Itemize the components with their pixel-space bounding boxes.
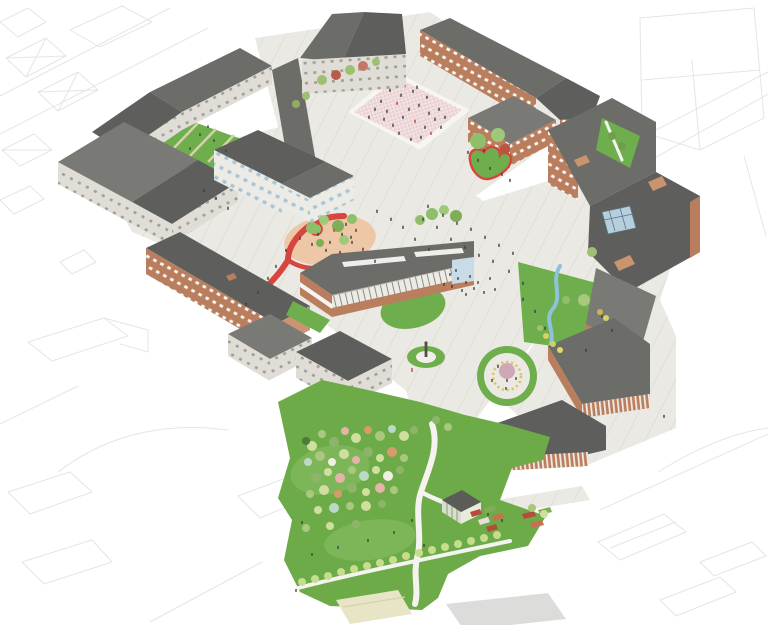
park-tree bbox=[339, 449, 349, 459]
walk-tree bbox=[450, 210, 462, 222]
path-row-tree bbox=[298, 578, 306, 586]
stream-plant bbox=[562, 296, 570, 304]
person bbox=[416, 86, 417, 89]
park-tree bbox=[390, 486, 398, 494]
park-tree bbox=[432, 416, 440, 424]
person bbox=[275, 265, 276, 268]
context-building bbox=[660, 577, 736, 616]
heart-planter-tree bbox=[470, 133, 486, 149]
person bbox=[505, 387, 506, 390]
person bbox=[213, 139, 214, 142]
park-tree bbox=[351, 433, 361, 443]
park-tree bbox=[346, 502, 354, 510]
park-tree bbox=[326, 522, 334, 530]
walk-tree bbox=[439, 205, 449, 215]
person bbox=[501, 173, 502, 176]
street-tree bbox=[302, 92, 310, 100]
person bbox=[411, 368, 412, 372]
person bbox=[398, 132, 399, 135]
person bbox=[362, 248, 363, 251]
park-tree bbox=[387, 447, 397, 457]
person bbox=[423, 544, 424, 547]
person bbox=[515, 377, 516, 380]
person bbox=[345, 223, 346, 226]
person bbox=[199, 133, 200, 136]
person bbox=[245, 303, 246, 306]
park-tree bbox=[347, 483, 357, 493]
person bbox=[227, 207, 228, 210]
park-tree bbox=[341, 427, 349, 435]
person bbox=[434, 118, 435, 121]
heart-planter-tree bbox=[500, 144, 510, 154]
street-tree bbox=[372, 58, 380, 66]
person bbox=[449, 273, 450, 276]
person bbox=[396, 102, 397, 105]
stream-plant bbox=[543, 333, 549, 339]
park-tree bbox=[528, 504, 536, 512]
person bbox=[341, 233, 342, 236]
east-wall bbox=[690, 196, 700, 258]
person bbox=[611, 329, 612, 332]
street-tree bbox=[292, 100, 300, 108]
masterplan-page bbox=[0, 0, 768, 625]
context-lot-x bbox=[38, 72, 98, 111]
stream-plant bbox=[550, 341, 556, 347]
heart-planter-tree bbox=[491, 128, 505, 142]
person bbox=[389, 89, 390, 92]
person bbox=[402, 116, 403, 119]
path-row-tree bbox=[363, 562, 371, 570]
playground-tree bbox=[339, 235, 349, 245]
park-tree bbox=[324, 468, 332, 476]
person bbox=[467, 151, 468, 154]
person bbox=[412, 90, 413, 93]
playground-tree bbox=[306, 222, 318, 234]
person bbox=[473, 287, 474, 290]
playground-tree bbox=[316, 239, 324, 247]
park-tree bbox=[319, 485, 329, 495]
park-tree bbox=[388, 425, 396, 433]
park-tree bbox=[306, 490, 314, 498]
stream-plant bbox=[597, 309, 603, 315]
context-road-curve bbox=[58, 427, 228, 472]
lawn-tree bbox=[618, 142, 626, 150]
person bbox=[440, 126, 441, 129]
person bbox=[492, 260, 493, 263]
path-row-tree bbox=[493, 531, 501, 539]
context-building bbox=[28, 318, 148, 361]
person bbox=[442, 214, 443, 217]
person bbox=[456, 222, 457, 225]
person bbox=[501, 519, 502, 522]
person bbox=[489, 277, 490, 280]
person bbox=[295, 589, 296, 592]
context-street bbox=[0, 8, 170, 96]
stream-plant bbox=[587, 247, 597, 257]
person bbox=[424, 126, 425, 129]
person bbox=[497, 365, 498, 368]
circular-pergola-garden bbox=[477, 346, 537, 406]
stream-plant bbox=[557, 347, 563, 353]
playground-tree bbox=[347, 214, 357, 224]
context-building bbox=[60, 250, 96, 274]
person bbox=[498, 244, 499, 247]
park-tree bbox=[318, 430, 326, 438]
person bbox=[311, 553, 312, 556]
context-road-curve bbox=[658, 428, 768, 472]
path-row-tree bbox=[350, 565, 358, 573]
context-building bbox=[8, 472, 92, 514]
park-tree bbox=[361, 501, 371, 511]
context-street bbox=[744, 156, 766, 236]
facade-windows bbox=[302, 54, 406, 94]
park-tree bbox=[363, 447, 373, 457]
park-tree bbox=[314, 506, 322, 514]
person bbox=[380, 100, 381, 103]
person bbox=[390, 218, 391, 221]
person bbox=[436, 226, 437, 229]
person bbox=[461, 289, 462, 292]
community-park bbox=[278, 380, 552, 610]
path-row-tree bbox=[441, 543, 449, 551]
person bbox=[402, 226, 403, 229]
path-row-tree bbox=[415, 549, 423, 557]
person bbox=[325, 249, 326, 252]
person bbox=[351, 241, 352, 244]
park-tree bbox=[359, 471, 369, 481]
park-tree bbox=[540, 510, 548, 518]
person bbox=[438, 108, 439, 111]
person bbox=[329, 241, 330, 244]
path-row-tree bbox=[454, 540, 462, 548]
person bbox=[299, 237, 300, 240]
path-row-tree bbox=[480, 534, 488, 542]
park-tree bbox=[304, 458, 312, 466]
person bbox=[508, 270, 509, 273]
park-tree bbox=[410, 426, 418, 434]
context-street bbox=[0, 386, 78, 424]
person bbox=[386, 110, 387, 113]
person bbox=[426, 96, 427, 99]
context-lot bbox=[0, 8, 46, 37]
person bbox=[465, 293, 466, 296]
bottom-lots bbox=[336, 590, 566, 625]
path-row-tree bbox=[402, 552, 410, 560]
park-tree bbox=[315, 451, 325, 461]
context-lot-x bbox=[2, 134, 52, 166]
person bbox=[522, 298, 523, 301]
person bbox=[428, 248, 429, 251]
person bbox=[477, 159, 478, 162]
person bbox=[478, 254, 479, 257]
person bbox=[337, 546, 338, 549]
lawn-tree bbox=[608, 132, 616, 140]
street-tree bbox=[345, 65, 355, 75]
person bbox=[350, 236, 351, 239]
person bbox=[333, 229, 334, 232]
person bbox=[457, 277, 458, 280]
person bbox=[601, 315, 602, 318]
park-tree bbox=[396, 466, 404, 474]
building-north-hall bbox=[300, 12, 406, 94]
person bbox=[392, 124, 393, 127]
person bbox=[257, 291, 258, 294]
person bbox=[376, 210, 377, 213]
park-tree bbox=[335, 473, 345, 483]
path-row-tree bbox=[311, 575, 319, 583]
context-building bbox=[22, 540, 112, 584]
person bbox=[469, 275, 470, 278]
park-tree bbox=[311, 473, 321, 483]
statue bbox=[425, 344, 428, 357]
park-tree bbox=[352, 520, 360, 528]
park-tree bbox=[372, 466, 380, 474]
person bbox=[428, 112, 429, 115]
person bbox=[477, 281, 478, 284]
person bbox=[317, 233, 318, 236]
person bbox=[465, 281, 466, 284]
person bbox=[408, 108, 409, 111]
path-row-tree bbox=[467, 537, 475, 545]
person bbox=[491, 379, 492, 382]
person bbox=[203, 189, 204, 192]
person bbox=[189, 147, 190, 150]
person bbox=[663, 415, 664, 418]
person bbox=[470, 228, 471, 231]
person bbox=[484, 236, 485, 239]
park-tree bbox=[399, 431, 409, 441]
person bbox=[487, 513, 488, 516]
person bbox=[215, 197, 216, 200]
person bbox=[422, 218, 423, 221]
park-tree bbox=[348, 466, 356, 474]
person bbox=[585, 349, 586, 352]
person bbox=[534, 310, 535, 313]
person bbox=[414, 238, 415, 241]
person bbox=[411, 519, 412, 522]
person bbox=[464, 246, 465, 249]
person bbox=[339, 251, 340, 254]
park-tree bbox=[362, 488, 370, 496]
street-tree bbox=[358, 61, 368, 71]
person bbox=[301, 521, 302, 524]
person bbox=[410, 138, 411, 141]
person bbox=[374, 260, 375, 263]
person bbox=[509, 179, 510, 182]
context-lot-x bbox=[6, 38, 66, 77]
statue-head bbox=[424, 341, 427, 344]
park-tree bbox=[302, 524, 310, 532]
park-tree bbox=[364, 426, 372, 434]
person bbox=[489, 167, 490, 170]
person bbox=[368, 116, 369, 119]
park-tree bbox=[378, 500, 386, 508]
person bbox=[225, 149, 226, 152]
path-row-tree bbox=[337, 568, 345, 576]
person bbox=[393, 531, 394, 534]
person bbox=[444, 116, 445, 119]
person bbox=[383, 118, 384, 121]
context-street bbox=[150, 562, 262, 622]
stream-plant bbox=[537, 325, 543, 331]
path-row-tree bbox=[376, 559, 384, 567]
stream-plant bbox=[603, 315, 609, 321]
person bbox=[420, 136, 421, 139]
person bbox=[512, 252, 513, 255]
grey-lot bbox=[446, 593, 566, 625]
person bbox=[450, 238, 451, 241]
context-building bbox=[0, 186, 44, 214]
person bbox=[374, 108, 375, 111]
person bbox=[427, 205, 428, 208]
person bbox=[367, 539, 368, 542]
park-tree bbox=[352, 456, 360, 464]
person bbox=[451, 285, 452, 288]
path-row-tree bbox=[324, 572, 332, 580]
person bbox=[355, 229, 356, 232]
person bbox=[267, 277, 268, 280]
park-tree bbox=[444, 423, 452, 431]
context-building bbox=[598, 514, 686, 560]
person bbox=[443, 283, 444, 286]
person bbox=[400, 94, 401, 97]
person bbox=[430, 132, 431, 135]
park-tree bbox=[334, 490, 342, 498]
context-building bbox=[70, 6, 152, 47]
park-tree bbox=[383, 471, 393, 481]
park-tree bbox=[400, 454, 408, 462]
park-tree bbox=[375, 431, 385, 441]
blossom-tree bbox=[499, 363, 515, 379]
person bbox=[522, 282, 523, 285]
park-tree bbox=[329, 437, 339, 447]
person bbox=[483, 291, 484, 294]
person bbox=[311, 243, 312, 246]
path-row-tree bbox=[389, 556, 397, 564]
path-row-tree bbox=[428, 546, 436, 554]
street-tree bbox=[331, 70, 341, 80]
person bbox=[455, 269, 456, 272]
park-tree bbox=[328, 458, 336, 466]
park-tree bbox=[376, 454, 384, 462]
park-tree bbox=[375, 483, 385, 493]
person bbox=[418, 104, 419, 107]
park-tree bbox=[329, 503, 339, 513]
person bbox=[494, 288, 495, 291]
park-tree bbox=[302, 437, 310, 445]
context-building bbox=[700, 542, 766, 576]
walk-tree bbox=[426, 208, 438, 220]
person bbox=[414, 120, 415, 123]
masterplan-illustration bbox=[0, 0, 768, 625]
person bbox=[544, 327, 545, 330]
stream-plant bbox=[578, 294, 590, 306]
playground-tree bbox=[319, 215, 329, 225]
person bbox=[207, 125, 208, 128]
person bbox=[285, 249, 286, 252]
person bbox=[483, 149, 484, 152]
street-tree bbox=[317, 75, 327, 85]
